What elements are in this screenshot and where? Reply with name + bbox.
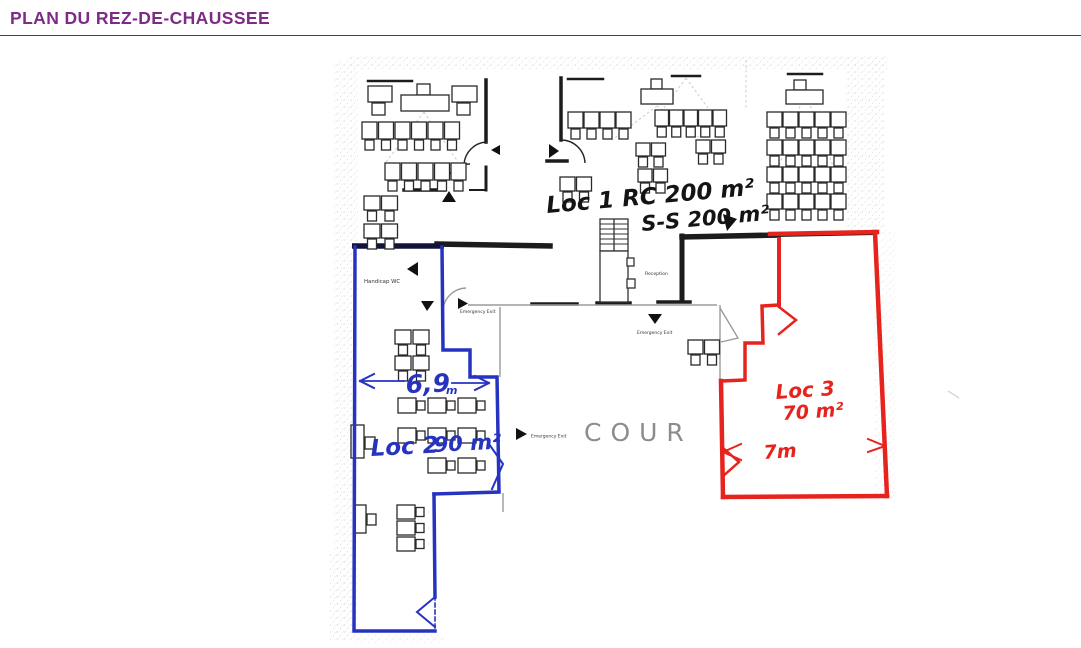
door-notch-icon (779, 307, 796, 334)
reception-label: Reception (645, 271, 668, 277)
door-notch-icon (417, 597, 435, 627)
door-arrow-icon (491, 145, 500, 155)
courtyard-walls (443, 288, 738, 512)
floor-plan-scan: Handicap WC Emergency Exit Emergency Exi… (0, 0, 1081, 648)
loc2-label: Loc 2 (370, 432, 439, 462)
loc3-width: 7m (763, 440, 797, 464)
loc2-area: 90 m² (433, 429, 503, 457)
dimension-arrow (723, 439, 885, 460)
emergency-exit-label: Emergency Exit (531, 434, 567, 440)
handicap-wc-label: Handicap WC (364, 279, 400, 285)
exit-arrow-icon (421, 301, 434, 311)
loc2-width-value: 6,9 (405, 368, 450, 399)
document-page: PLAN DU REZ-DE-CHAUSSEE (0, 0, 1081, 648)
door-arrow-icon (549, 144, 559, 158)
door-arc-icon (464, 142, 486, 164)
courtyard-label: COUR (584, 418, 693, 447)
exit-arrow-icon (648, 314, 662, 324)
loc3-area: 70 m² (782, 399, 845, 425)
emergency-exit-label: Emergency Exit (460, 309, 496, 315)
exit-arrow-icon (458, 298, 468, 309)
emergency-exit-label: Emergency Exit (637, 330, 673, 336)
loc2-width-unit: m (446, 384, 457, 397)
staircase (600, 219, 635, 302)
exit-arrow-icon (516, 428, 527, 440)
exit-arrow-icon (407, 262, 418, 276)
reception-room (600, 251, 628, 302)
door-arrow-icon (442, 191, 456, 202)
desk-clusters (362, 110, 846, 551)
loc3-outline (721, 232, 887, 497)
